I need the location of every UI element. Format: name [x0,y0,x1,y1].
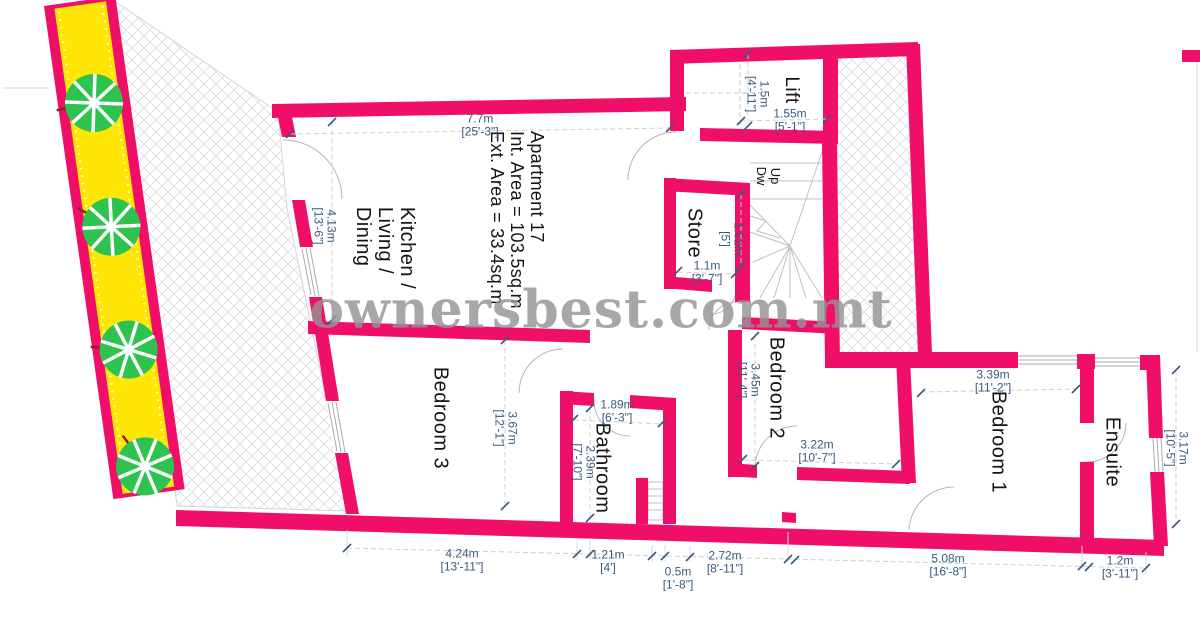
shaft-louvre [648,482,663,520]
room-label-bedroom2: Bedroom 2 [765,337,788,439]
dim-living-depth: 4.13m[13'-6"] [311,207,338,244]
floor-plan: ownersbest.com.mt Apartment 17 Int. Area… [0,0,1200,617]
dim-bedroom3-width: 4.24m[13'-11"] [440,548,483,575]
dim-bathroom-width-bottom: 1.21m[4'] [591,549,624,576]
dim-store-depth: 1.52m[5'] [718,222,745,255]
dim-bedroom1-width-bottom: 5.08m[16'-8"] [929,553,966,580]
dim-shaft-width: 0.5m[1'-8"] [663,566,694,593]
dim-bedroom1-width: 3.39m[11'-2"] [975,369,1011,396]
dim-corridor-width: 2.72m[8'-11"] [707,550,743,577]
room-label-bedroom1: Bedroom 1 [987,391,1010,493]
dim-ensuite-depth: 3.17m[10'-5"] [1163,429,1190,466]
room-label-bedroom3: Bedroom 3 [429,367,452,469]
dim-living-width: 7.7m[25'-3"] [461,113,498,140]
dim-ensuite-width: 1.2m[3'-11"] [1102,555,1138,582]
room-label-store: Store [683,208,706,258]
dim-lift-depth: 1.5m[4'-11"] [744,76,771,112]
dim-lift-width: 1.55m[5'-1"] [773,108,806,135]
stairs-direction-label: Up Dw [754,167,782,186]
dim-bathroom-depth: 2.39m[7'-10"] [570,443,597,480]
room-label-ensuite: Ensuite [1101,417,1124,487]
dim-bedroom2-width: 3.22m[10'-7"] [798,439,835,466]
watermark: ownersbest.com.mt [309,280,892,341]
room-label-lift: Lift [780,76,802,103]
dim-bedroom3-depth: 3.67m[12'-1"] [492,409,519,446]
dim-bedroom2-depth: 3.45m[11'-4"] [735,362,762,398]
room-label-kitchen-living-dining: Kitchen / Living / Dining [352,207,418,289]
dim-bathroom-width: 1.89m[6'-3"] [600,399,633,426]
